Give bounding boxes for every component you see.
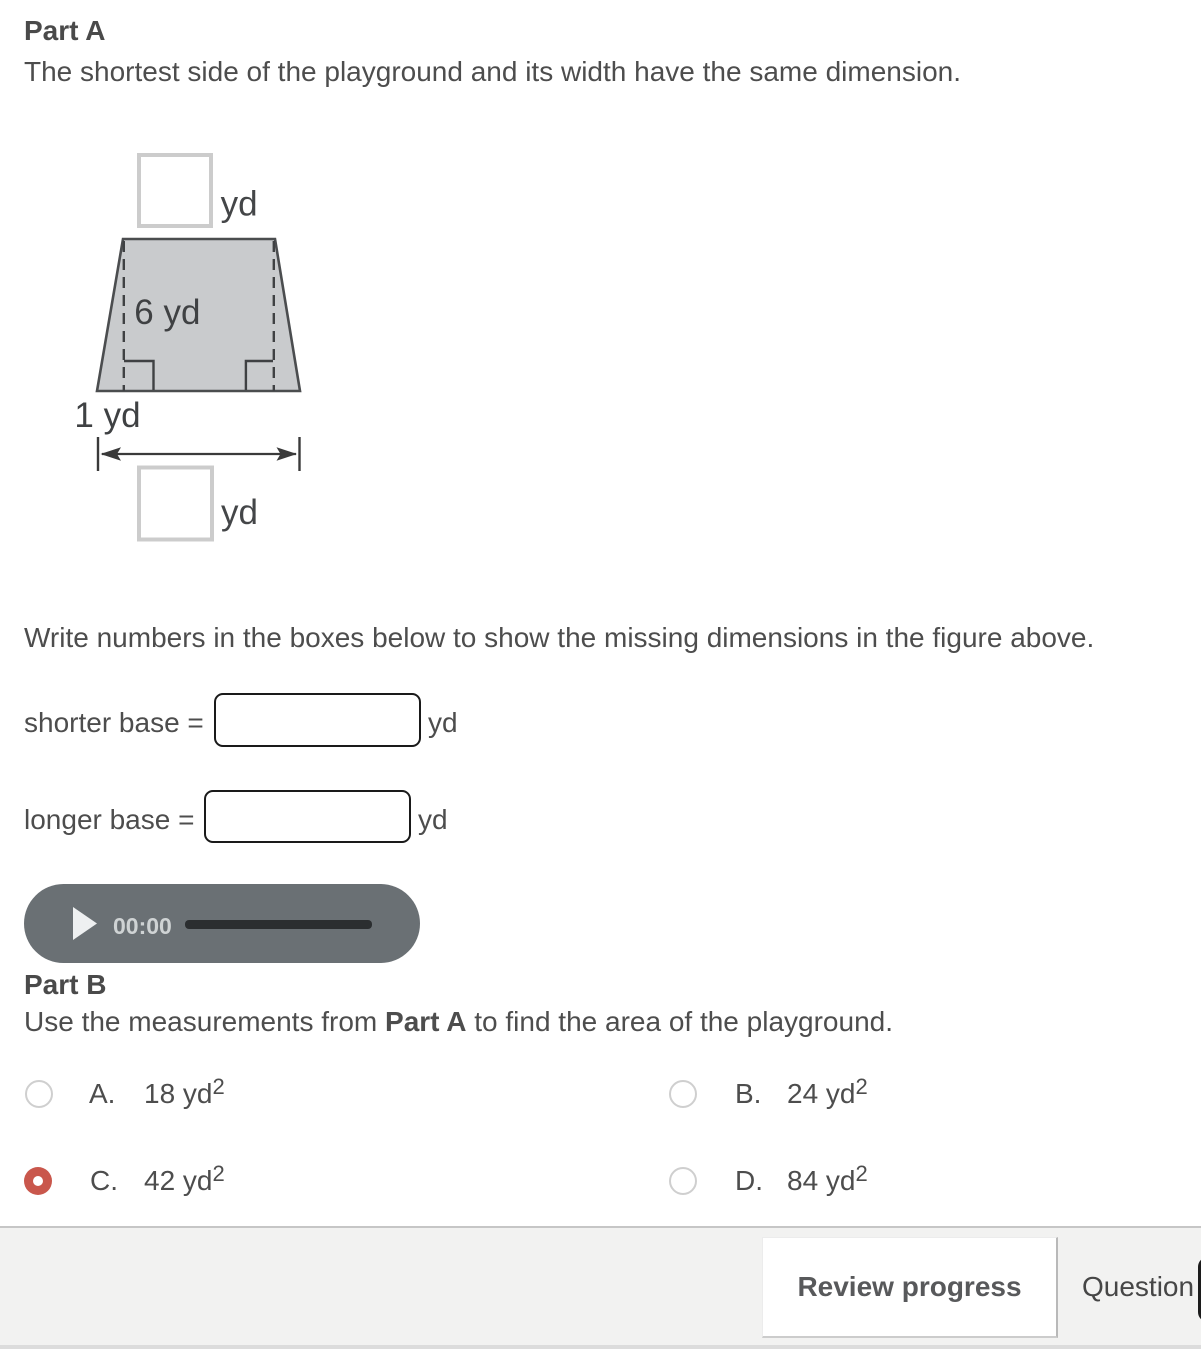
svg-text:yd: yd bbox=[221, 493, 258, 532]
svg-text:1 yd: 1 yd bbox=[74, 396, 140, 435]
svg-text:6 yd: 6 yd bbox=[134, 293, 200, 332]
svg-text:yd: yd bbox=[221, 185, 258, 224]
